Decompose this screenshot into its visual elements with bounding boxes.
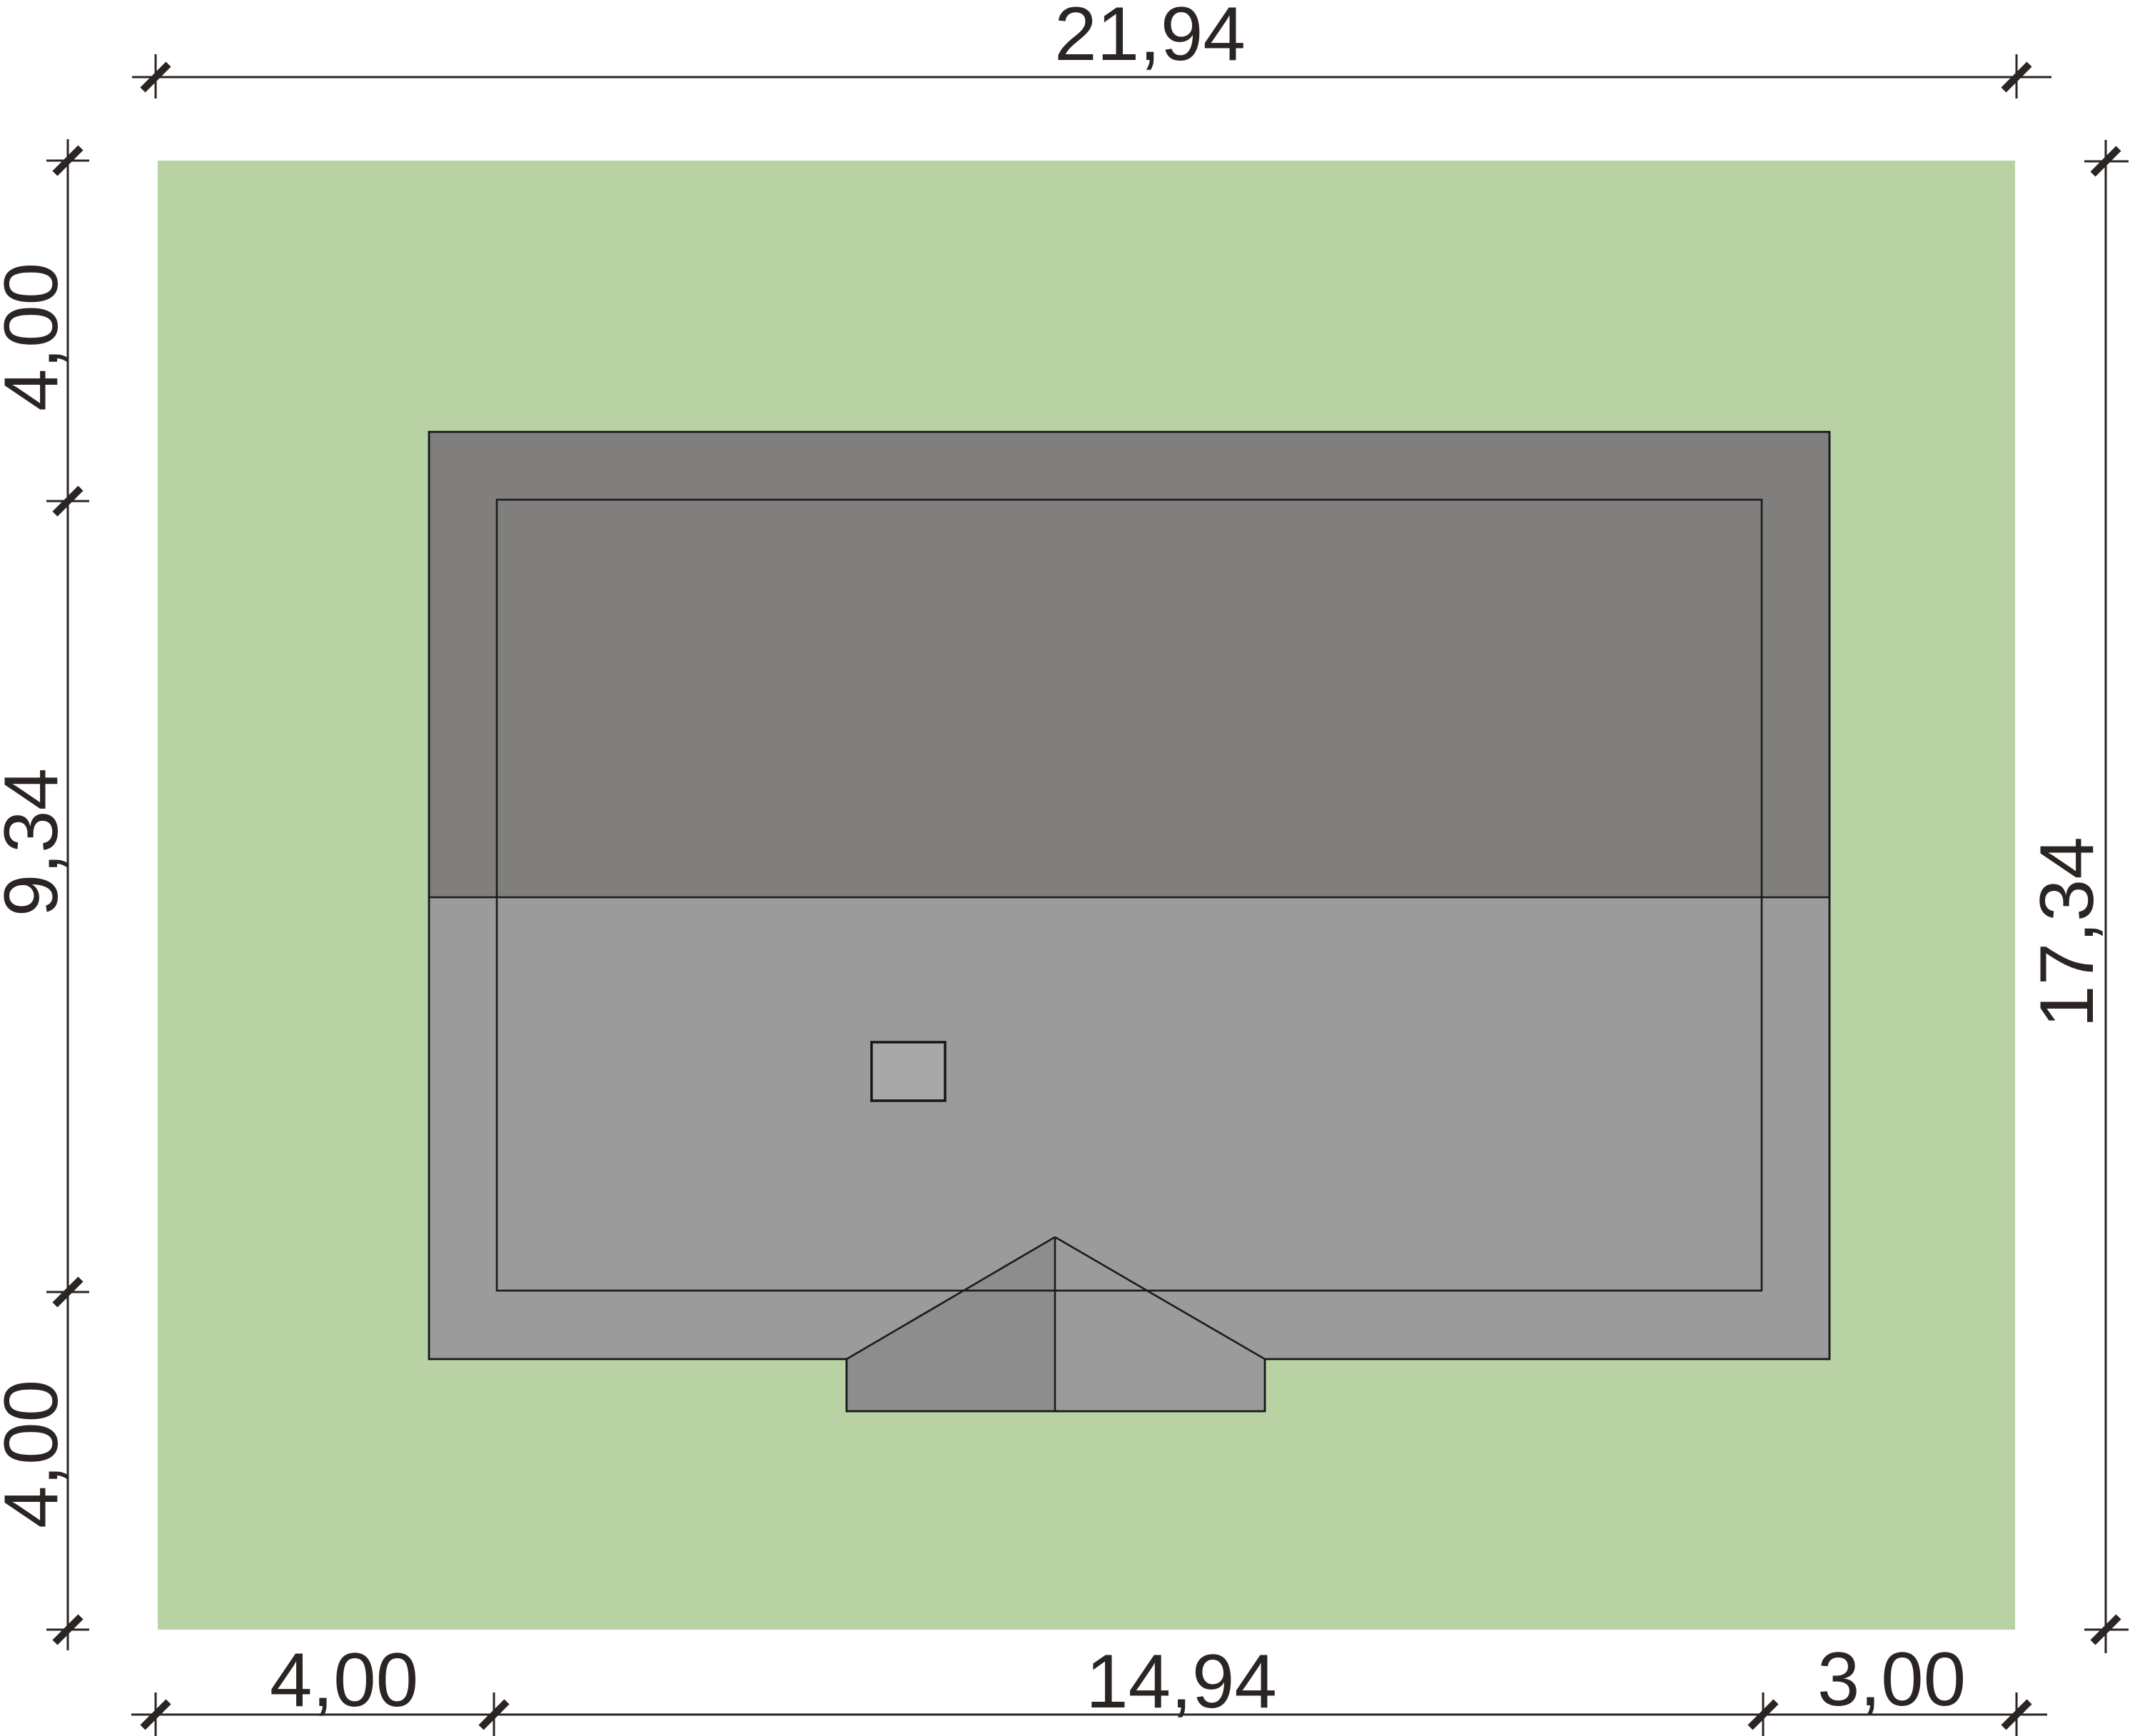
svg-text:4,00: 4,00 xyxy=(270,1637,418,1722)
svg-text:3,00: 3,00 xyxy=(1817,1636,1966,1722)
svg-text:9,34: 9,34 xyxy=(0,768,74,917)
svg-text:4,00: 4,00 xyxy=(0,263,74,411)
svg-text:17,34: 17,34 xyxy=(2024,837,2109,1028)
svg-text:4,00: 4,00 xyxy=(0,1380,74,1528)
svg-text:14,94: 14,94 xyxy=(1086,1638,1277,1724)
svg-text:21,94: 21,94 xyxy=(1054,0,1246,76)
